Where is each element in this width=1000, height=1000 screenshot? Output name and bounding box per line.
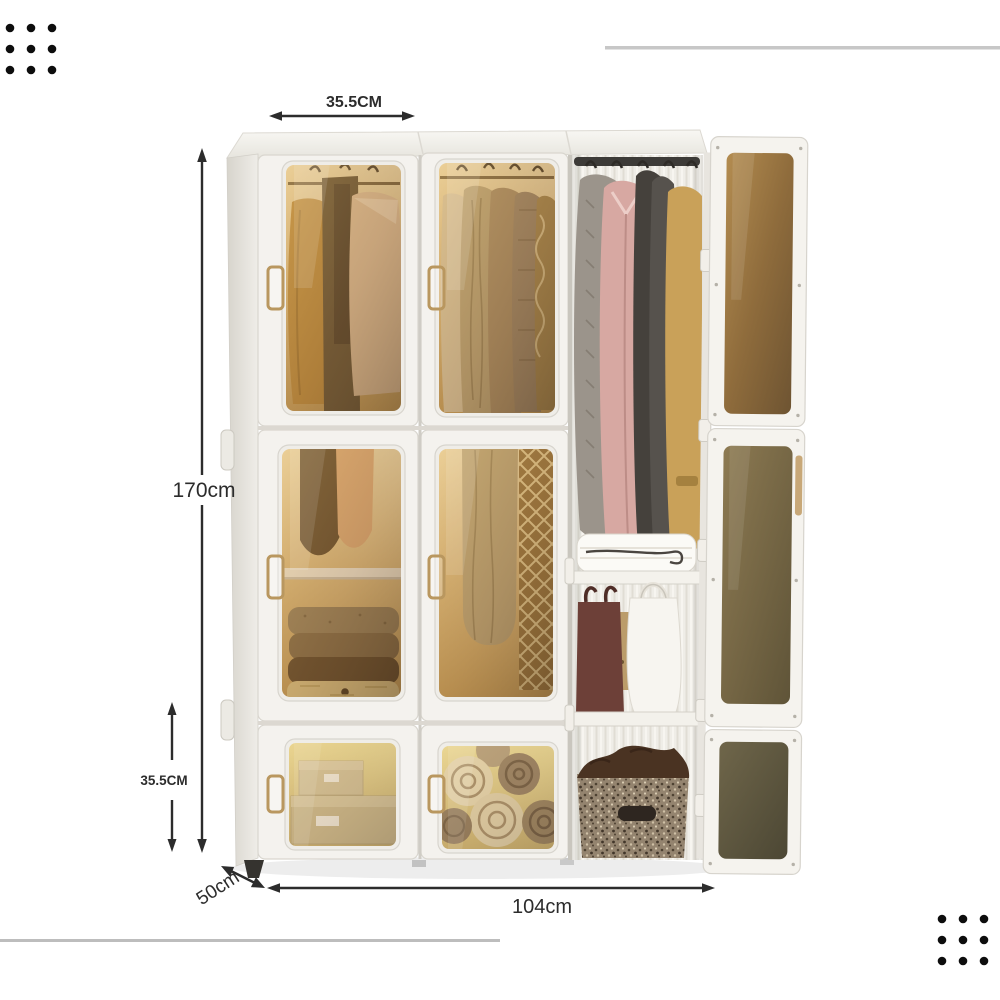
ground-shadow [230,857,730,879]
open-bay [571,155,703,860]
wardrobe-scene: 35.5CM 170cm 35.5CM 50cm [0,0,1000,1000]
label-top-module-width: 35.5CM [326,94,382,111]
dot-grid-bottom-right-icon [938,915,989,966]
handle[interactable] [429,556,444,598]
side-latch-tab [221,430,234,470]
label-width: 104cm [512,896,572,918]
wardrobe [221,130,808,879]
dim-width: 104cm [267,883,715,918]
shelf [571,712,703,726]
bag-maroon [576,602,624,714]
decor-rule-bottom-left [0,939,500,942]
wardrobe-side-panel [227,154,258,866]
wardrobe-foot [244,860,264,878]
decor-rule-top-right [605,46,1000,50]
window-middle-bottom [436,733,566,851]
dim-top-module-width: 35.5CM [269,94,415,121]
label-depth: 50cm [193,867,243,910]
open-door-bottom-window [718,742,788,860]
handle[interactable] [429,776,444,812]
handle[interactable] [429,267,444,309]
coat-camel-yellow [665,186,702,552]
open-door[interactable] [694,136,808,874]
window-left-middle [280,447,403,705]
window-left-top [284,163,403,413]
label-bottom-module-height: 35.5CM [140,773,187,788]
window-middle-middle [437,447,555,699]
bag-white-tote [627,598,681,712]
handle[interactable] [268,556,283,598]
dot-grid-top-left-icon [6,24,57,75]
window-middle-top [437,161,557,415]
shelf [571,571,703,584]
window-left-bottom [287,741,398,848]
product-image-canvas: 35.5CM 170cm 35.5CM 50cm [0,0,1000,1000]
dim-bottom-module-height: 35.5CM [140,702,187,852]
dim-height: 170cm [172,148,235,853]
handle[interactable] [268,776,283,812]
open-door-handle[interactable] [795,455,803,515]
side-latch-tab [221,700,234,740]
handle[interactable] [268,267,283,309]
label-height: 170cm [172,479,235,502]
